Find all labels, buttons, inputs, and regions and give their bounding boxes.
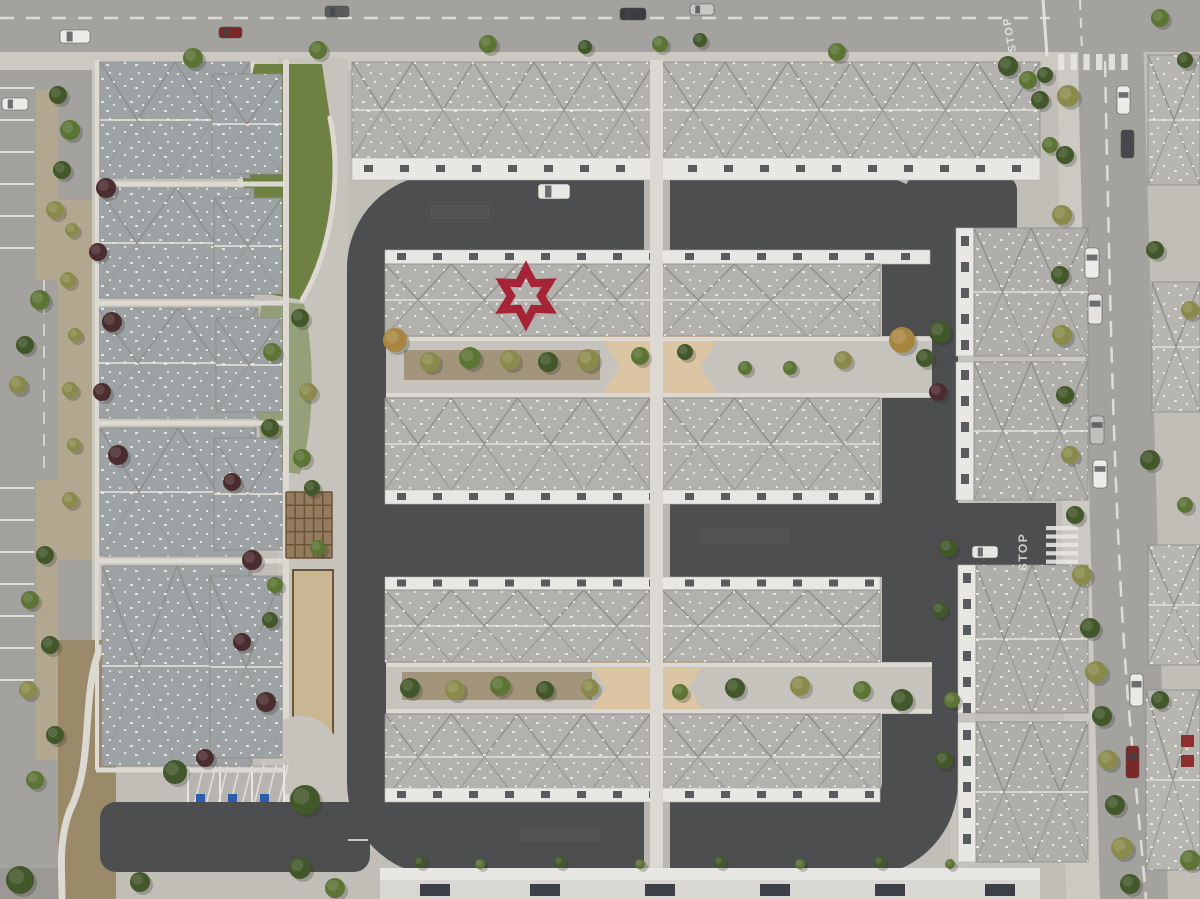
road-stop-marking-text: STOP — [1016, 533, 1030, 571]
central-row-1 — [352, 62, 1040, 180]
central-row-4 — [385, 577, 880, 662]
central-row-5 — [385, 714, 880, 802]
aerial-photo: STOPSTOP — [0, 0, 1200, 899]
left-cluster-buildings — [96, 60, 284, 770]
bottom-row-houses — [380, 868, 1040, 899]
aerial-photo-canvas: STOPSTOP — [0, 0, 1200, 899]
central-row-3 — [385, 398, 880, 504]
central-walkway — [650, 60, 663, 868]
